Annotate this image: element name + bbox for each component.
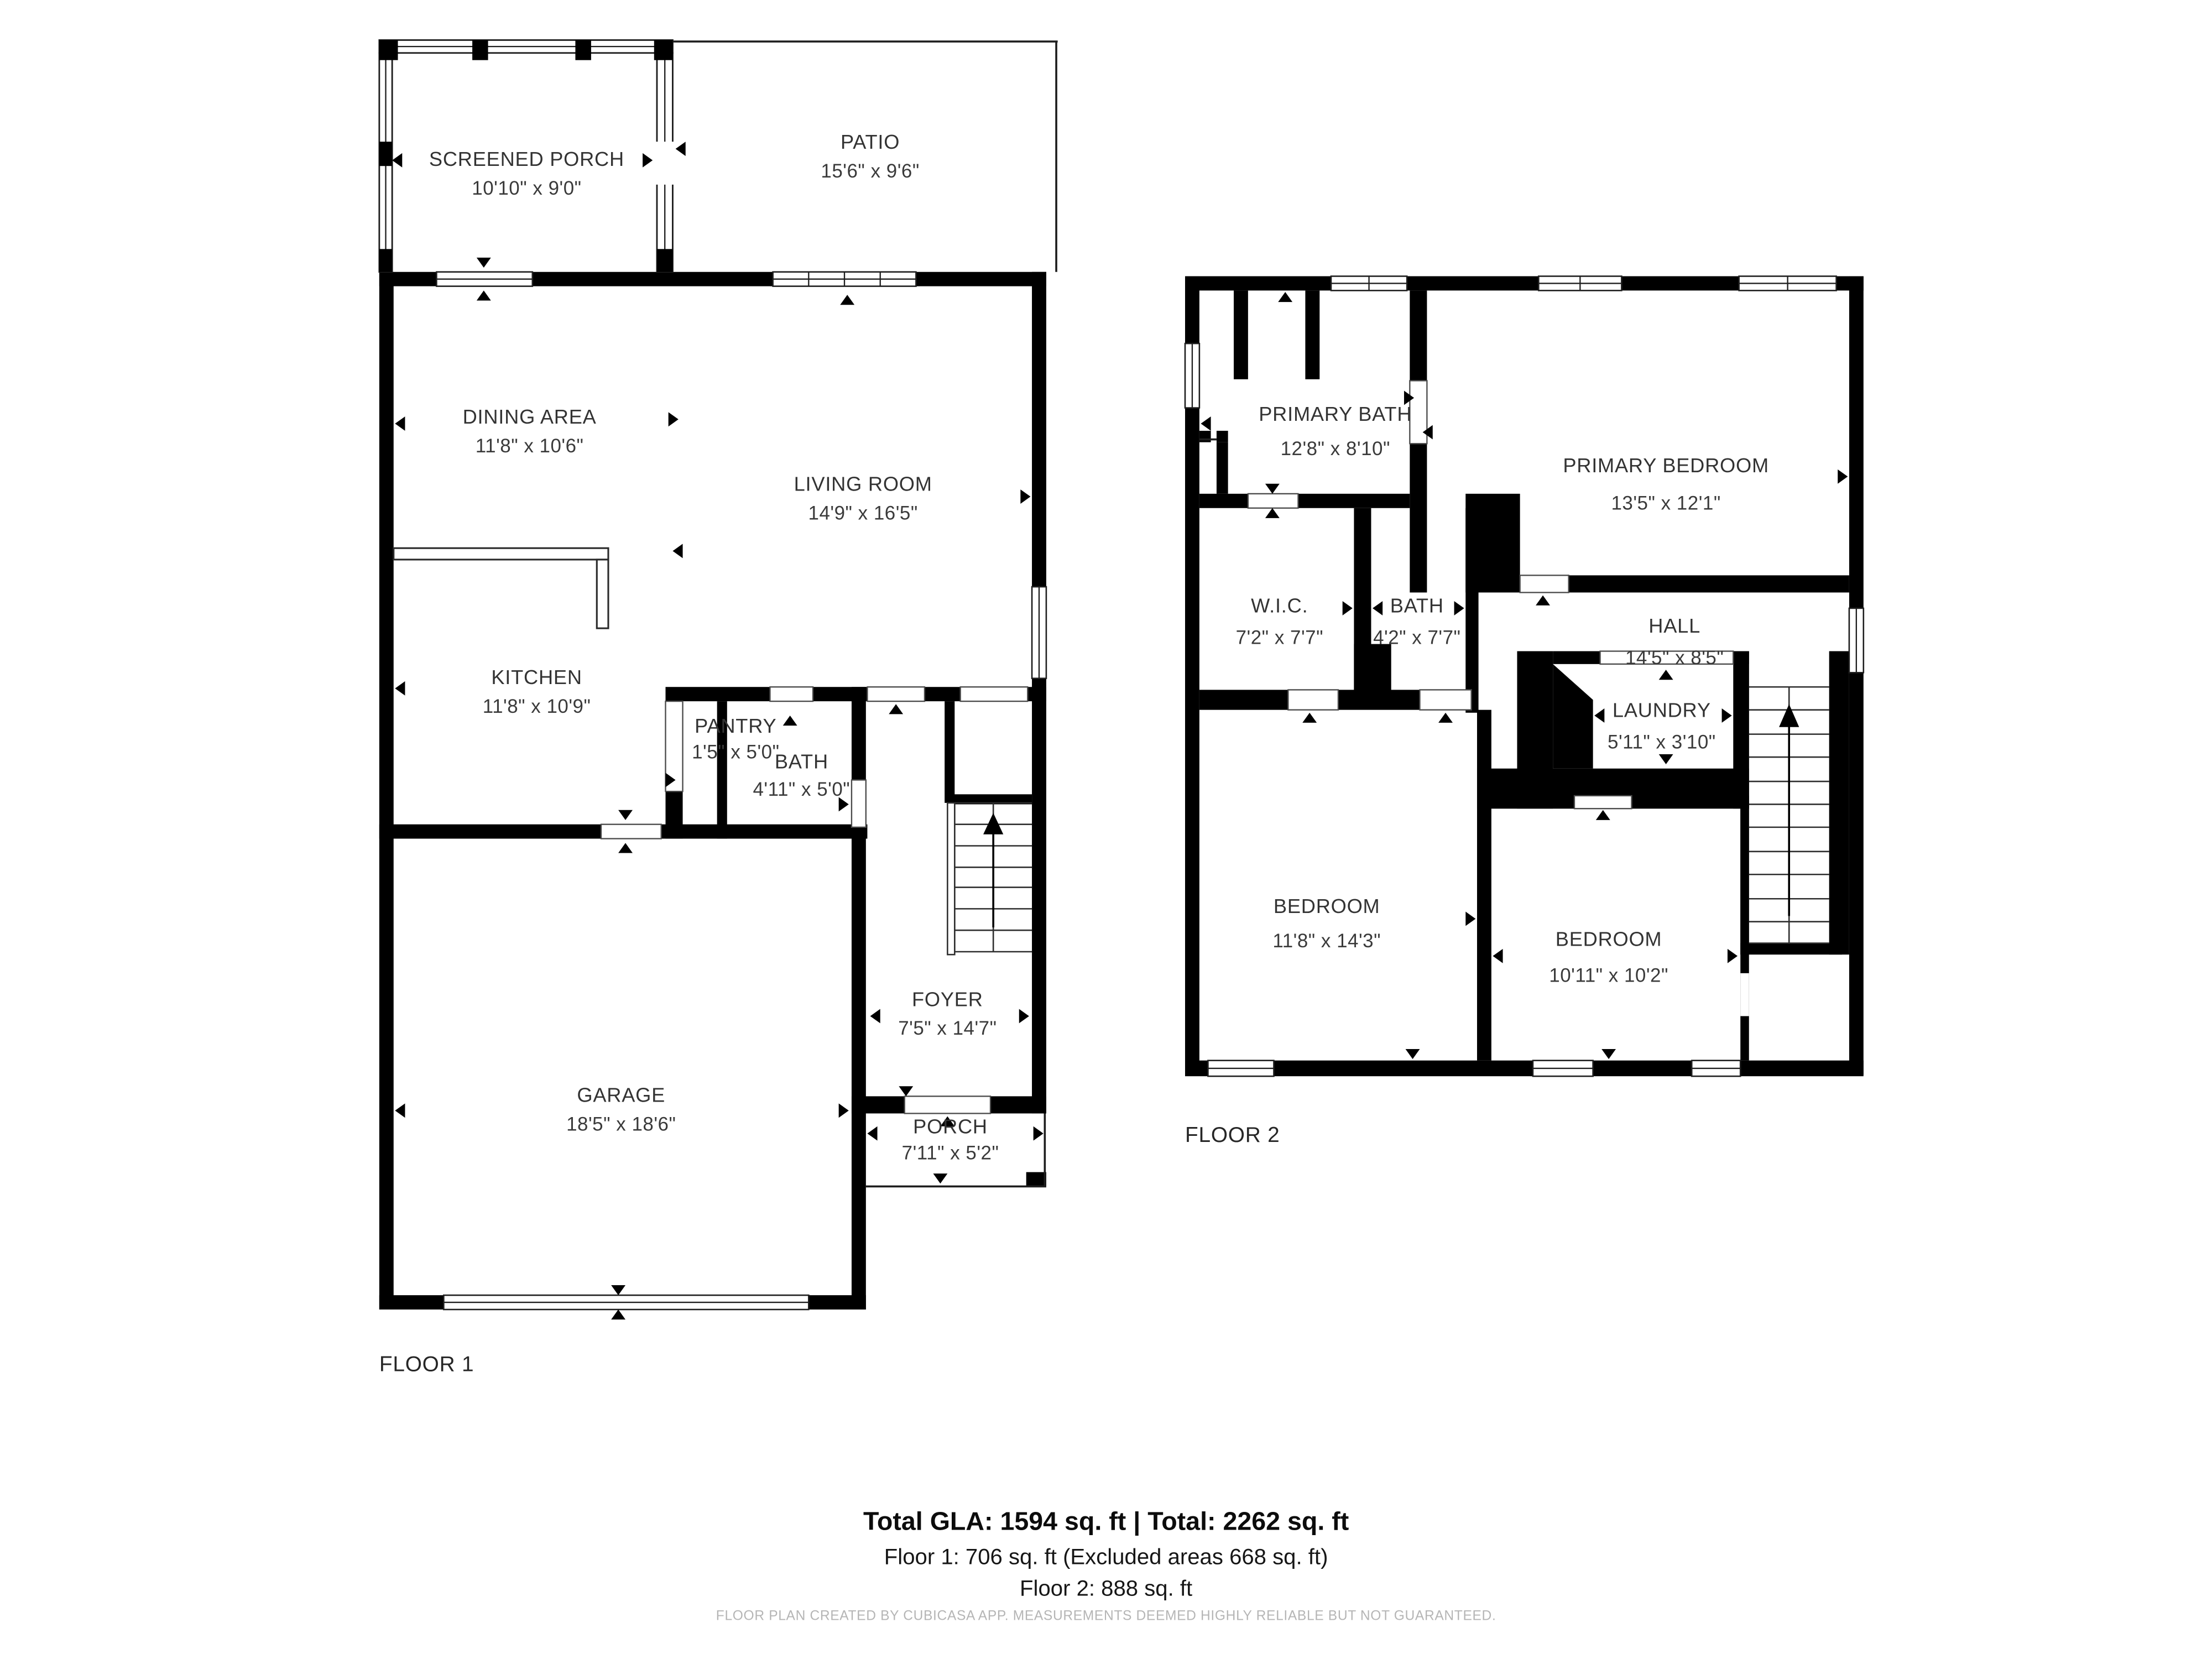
kitchen-counter — [394, 548, 608, 628]
room-label-garage: GARAGE — [577, 1084, 665, 1107]
floor2-walls — [1185, 276, 1864, 1076]
disclaimer-text: FLOOR PLAN CREATED BY CUBICASA APP. MEAS… — [716, 1609, 1496, 1624]
floor2-area-line: Floor 2: 888 sq. ft — [1020, 1577, 1192, 1601]
room-label-hall: HALL — [1648, 614, 1700, 637]
room-dims-primary-bedroom: 13'5" x 12'1" — [1611, 492, 1720, 514]
floor2-label: FLOOR 2 — [1185, 1123, 1280, 1147]
room-dims-hall: 14'5" x 8'5" — [1625, 647, 1724, 669]
room-label-wic: W.I.C. — [1251, 594, 1308, 617]
room-dims-screened-porch: 10'10" x 9'0" — [472, 178, 581, 199]
room-label-laundry: LAUNDRY — [1613, 699, 1711, 722]
room-dims-bedroom-left: 11'8" x 14'3" — [1272, 930, 1381, 952]
room-label-kitchen: KITCHEN — [491, 666, 582, 688]
total-area-line: Total GLA: 1594 sq. ft | Total: 2262 sq.… — [863, 1507, 1349, 1536]
room-dims-bath-f1: 4'11" x 5'0" — [753, 779, 850, 800]
patio-boundary — [672, 41, 1057, 272]
room-dims-garage: 18'5" x 18'6" — [566, 1114, 676, 1135]
room-label-bedroom-left: BEDROOM — [1274, 895, 1380, 917]
room-dims-primary-bath: 12'8" x 8'10" — [1281, 438, 1390, 460]
room-dims-pantry: 1'5" x 5'0" — [692, 742, 779, 763]
room-label-pantry: PANTRY — [695, 714, 776, 737]
room-dims-laundry: 5'11" x 3'10" — [1608, 732, 1716, 753]
room-label-primary-bath: PRIMARY BATH — [1259, 403, 1412, 425]
floorplan-canvas: SCREENED PORCH 10'10" x 9'0" PATIO 15'6"… — [0, 0, 2212, 1659]
room-label-bath-f1: BATH — [775, 750, 828, 773]
room-dims-dining-area: 11'8" x 10'6" — [476, 435, 584, 457]
floor1-area-line: Floor 1: 706 sq. ft (Excluded areas 668 … — [884, 1545, 1328, 1569]
floor2-plan: PRIMARY BATH 12'8" x 8'10" PRIMARY BEDRO… — [1185, 276, 1864, 1147]
room-label-patio: PATIO — [841, 131, 900, 153]
foyer-staircase — [947, 803, 1032, 954]
room-label-foyer: FOYER — [912, 988, 983, 1010]
room-label-porch: PORCH — [913, 1115, 988, 1138]
floor1-label: FLOOR 1 — [379, 1352, 474, 1376]
room-label-living-room: LIVING ROOM — [794, 473, 932, 495]
room-dims-patio: 15'6" x 9'6" — [821, 160, 919, 182]
floor1-plan: SCREENED PORCH 10'10" x 9'0" PATIO 15'6"… — [379, 40, 1058, 1376]
room-dims-bath-f2: 4'2" x 7'7" — [1373, 627, 1460, 649]
room-label-primary-bedroom: PRIMARY BEDROOM — [1563, 454, 1769, 477]
floor2-staircase — [1749, 687, 1829, 943]
room-label-dining-area: DINING AREA — [463, 405, 597, 428]
area-summary: Total GLA: 1594 sq. ft | Total: 2262 sq.… — [716, 1507, 1496, 1624]
room-dims-living-room: 14'9" x 16'5" — [808, 502, 918, 524]
room-label-screened-porch: SCREENED PORCH — [429, 148, 624, 170]
room-dims-foyer: 7'5" x 14'7" — [898, 1018, 997, 1039]
room-dims-wic: 7'2" x 7'7" — [1236, 627, 1323, 649]
room-dims-kitchen: 11'8" x 10'9" — [483, 696, 591, 717]
room-dims-bedroom-right: 10'11" x 10'2" — [1549, 964, 1668, 986]
room-label-bath-f2: BATH — [1390, 594, 1444, 617]
room-label-bedroom-right: BEDROOM — [1556, 928, 1662, 951]
room-dims-porch: 7'11" x 5'2" — [902, 1142, 999, 1164]
